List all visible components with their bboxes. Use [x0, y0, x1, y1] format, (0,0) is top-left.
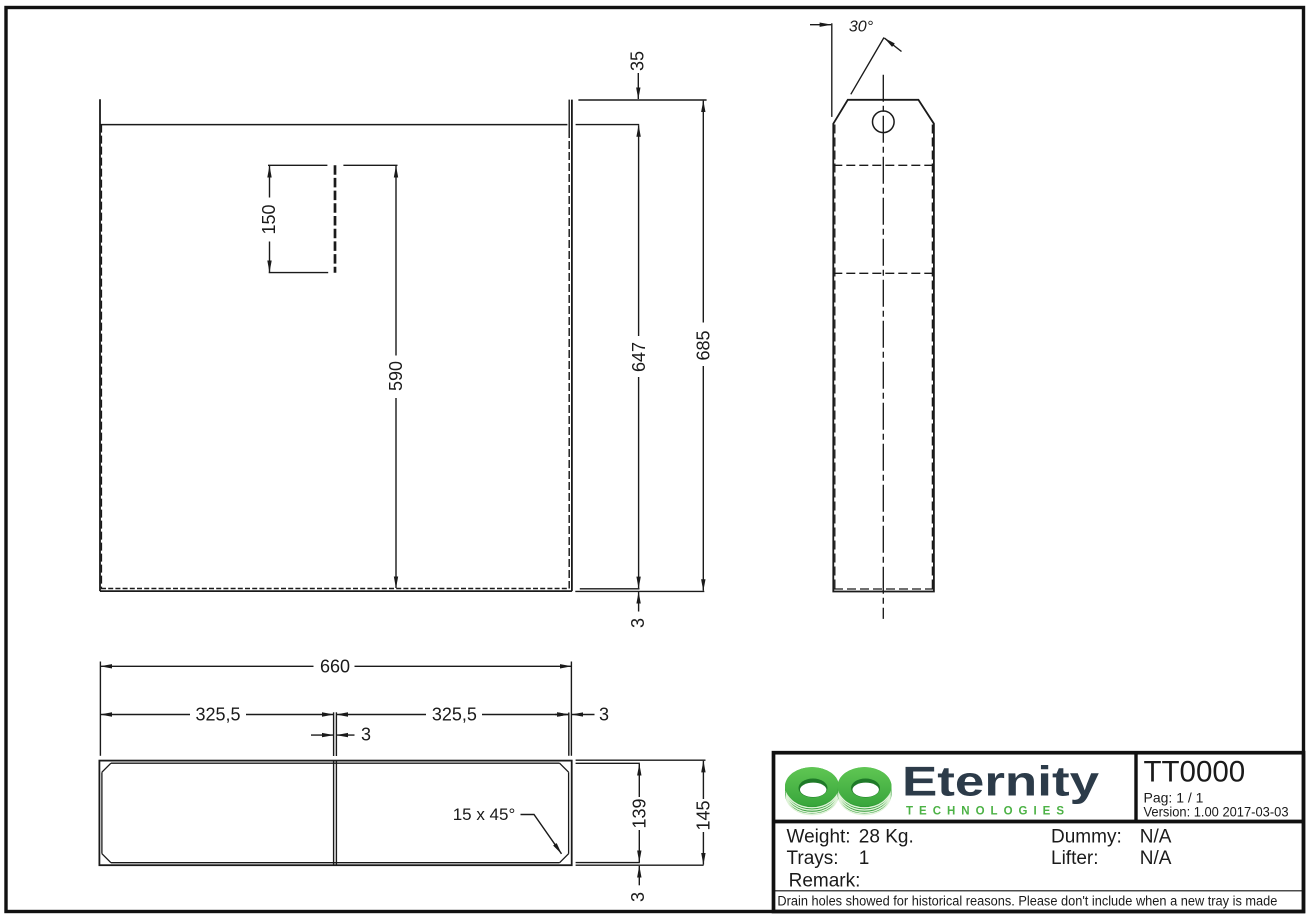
- svg-text:15 x 45°: 15 x 45°: [453, 805, 516, 824]
- svg-text:1: 1: [859, 848, 870, 869]
- svg-text:3: 3: [628, 892, 648, 902]
- svg-text:Remark:: Remark:: [789, 871, 861, 892]
- svg-text:145: 145: [693, 800, 713, 830]
- svg-text:325,5: 325,5: [195, 705, 240, 725]
- svg-text:TECHNOLOGIES: TECHNOLOGIES: [906, 806, 1064, 818]
- svg-text:3: 3: [361, 725, 371, 745]
- svg-text:N/A: N/A: [1140, 848, 1172, 869]
- svg-text:3: 3: [599, 705, 609, 725]
- svg-text:Eternity: Eternity: [902, 758, 1099, 805]
- svg-text:Weight:: Weight:: [787, 827, 851, 848]
- svg-text:590: 590: [386, 361, 406, 391]
- svg-text:Drain holes showed for histori: Drain holes showed for historical reason…: [777, 894, 1277, 909]
- svg-text:647: 647: [629, 342, 649, 372]
- svg-text:139: 139: [629, 798, 649, 828]
- svg-text:660: 660: [320, 656, 350, 676]
- svg-text:Trays:: Trays:: [787, 848, 839, 869]
- svg-text:28 Kg.: 28 Kg.: [859, 827, 914, 848]
- svg-text:N/A: N/A: [1140, 827, 1172, 848]
- svg-text:35: 35: [628, 51, 648, 71]
- svg-text:TT0000: TT0000: [1144, 756, 1246, 789]
- svg-text:Version: 1.00 2017-03-03: Version: 1.00 2017-03-03: [1144, 804, 1289, 820]
- svg-text:325,5: 325,5: [432, 705, 477, 725]
- svg-text:685: 685: [694, 330, 714, 360]
- svg-text:150: 150: [259, 204, 279, 234]
- svg-text:3: 3: [628, 618, 648, 628]
- svg-text:Dummy:: Dummy:: [1051, 827, 1122, 848]
- svg-text:Lifter:: Lifter:: [1051, 848, 1099, 869]
- svg-text:30°: 30°: [849, 19, 874, 36]
